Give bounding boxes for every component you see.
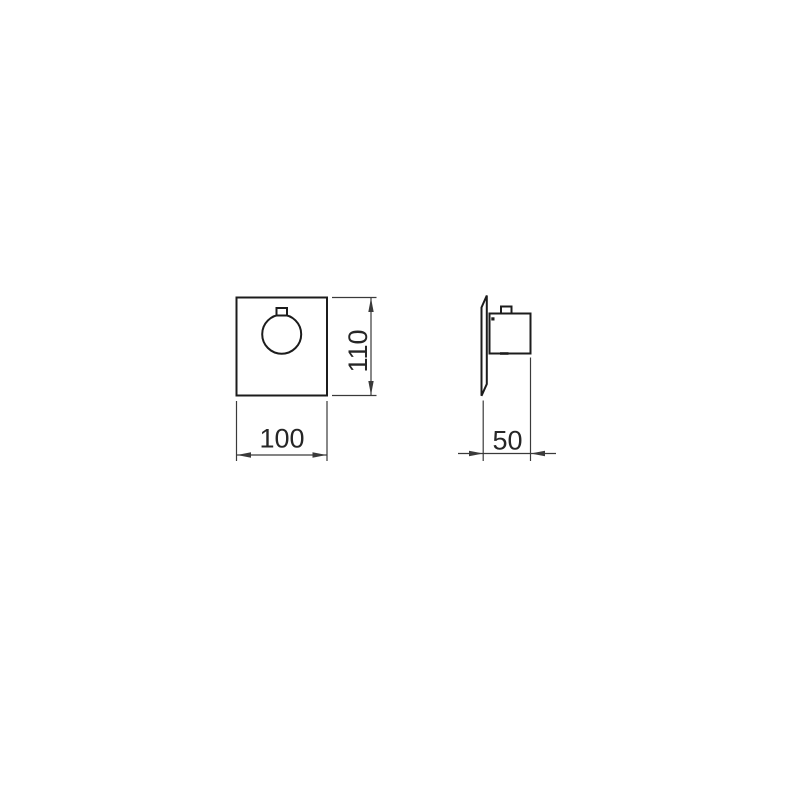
- arrowhead-left-icon: [237, 452, 251, 457]
- front-height-dimension: 110: [332, 298, 377, 396]
- side-knob-body: [490, 314, 531, 354]
- side-view: [482, 296, 531, 396]
- front-width-dimension: 100: [237, 401, 328, 461]
- side-depth-label: 50: [492, 426, 522, 456]
- front-height-label: 110: [343, 329, 373, 372]
- arrowhead-up-icon: [368, 298, 373, 312]
- front-width-label: 100: [259, 424, 304, 454]
- technical-drawing-canvas: 110 100 50: [0, 0, 800, 800]
- side-plate-outline: [482, 296, 487, 396]
- arrowhead-down-icon: [368, 381, 373, 395]
- side-knob-tab: [501, 307, 512, 314]
- drawing-page: 110 100 50: [0, 0, 800, 800]
- side-detail-tick: [500, 352, 509, 355]
- front-knob-tab: [277, 308, 288, 316]
- side-detail-dot: [491, 317, 494, 320]
- side-depth-dimension: 50: [458, 358, 556, 462]
- arrowhead-inward-left-icon: [531, 451, 546, 456]
- arrowhead-right-icon: [313, 452, 327, 457]
- arrowhead-inward-right-icon: [469, 451, 483, 456]
- front-knob-circle: [262, 315, 301, 354]
- front-view: [237, 298, 328, 396]
